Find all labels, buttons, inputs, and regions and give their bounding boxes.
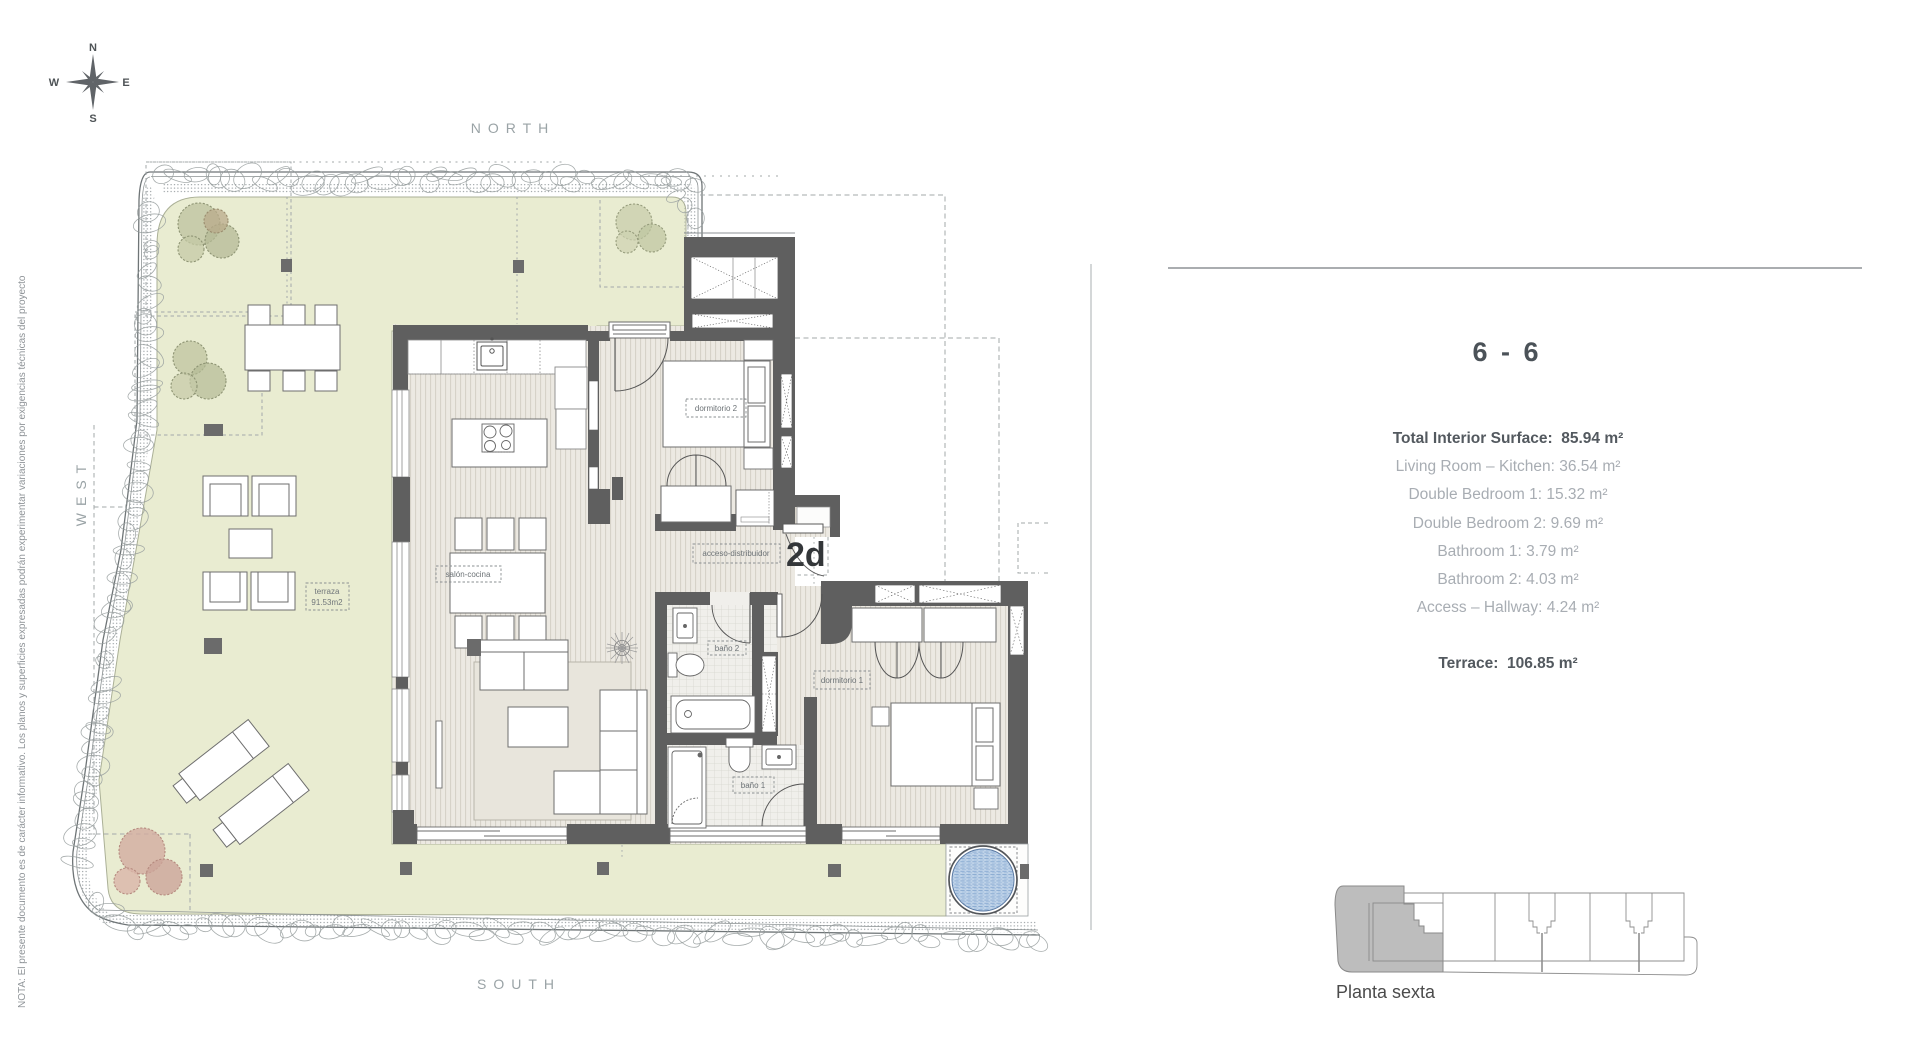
svg-text:Access – Hallway: 4.24 m²: Access – Hallway: 4.24 m² (1417, 599, 1600, 616)
svg-text:Bathroom 2: 4.03 m²: Bathroom 2: 4.03 m² (1437, 571, 1578, 588)
svg-text:91.53m2: 91.53m2 (311, 598, 343, 607)
svg-text:NORTH: NORTH (471, 120, 556, 136)
svg-text:salón-cocina: salón-cocina (446, 570, 491, 579)
svg-text:Bathroom 1: 3.79 m²: Bathroom 1: 3.79 m² (1437, 543, 1578, 560)
svg-text:W: W (49, 77, 60, 89)
svg-text:E: E (122, 77, 129, 89)
svg-text:baño 1: baño 1 (741, 781, 766, 790)
svg-text:Living Room – Kitchen: 36.54 m: Living Room – Kitchen: 36.54 m² (1396, 458, 1621, 475)
svg-text:dormitorio 2: dormitorio 2 (695, 404, 738, 413)
svg-text:Total Interior Surface: 85.94: Total Interior Surface: 85.94 m² (1393, 430, 1624, 447)
svg-text:6 - 6: 6 - 6 (1472, 337, 1541, 367)
svg-text:S: S (89, 113, 96, 125)
svg-text:dormitorio 1: dormitorio 1 (821, 676, 864, 685)
svg-text:terraza: terraza (315, 587, 340, 596)
svg-text:acceso-distribuidor: acceso-distribuidor (702, 549, 769, 558)
svg-text:WEST: WEST (73, 458, 89, 526)
svg-text:Terrace: 106.85 m²: Terrace: 106.85 m² (1438, 655, 1577, 672)
svg-text:baño 2: baño 2 (715, 644, 740, 653)
svg-text:2d: 2d (786, 536, 826, 574)
svg-text:NOTA: El presente documento es: NOTA: El presente documento es de caráct… (17, 275, 28, 1008)
svg-text:Double Bedroom 2: 9.69 m²: Double Bedroom 2: 9.69 m² (1413, 515, 1603, 532)
svg-text:Double Bedroom 1: 15.32 m²: Double Bedroom 1: 15.32 m² (1408, 486, 1607, 503)
svg-text:Planta sexta: Planta sexta (1336, 982, 1436, 1002)
svg-text:SOUTH: SOUTH (477, 976, 561, 992)
svg-text:N: N (89, 42, 97, 54)
